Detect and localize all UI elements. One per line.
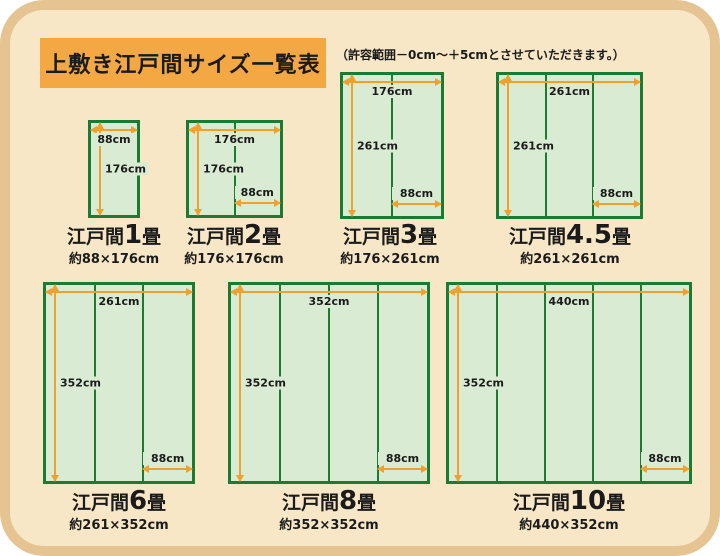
size-chart-stage: 上敷き江戸間サイズ一覧表 （許容範囲－0cm～＋5cmとさせていただきます。） … xyxy=(0,0,720,556)
diagram-title-suffix: 畳 xyxy=(357,492,376,514)
width-arrow xyxy=(189,129,280,131)
mat-width-label: 88cm xyxy=(392,187,441,200)
mat-width-arrow xyxy=(593,203,640,205)
diagram-title-prefix: 江戸間 xyxy=(282,492,339,514)
diagram-title-prefix: 江戸間 xyxy=(343,226,400,248)
height-arrow xyxy=(457,285,459,481)
width-arrow xyxy=(343,81,441,83)
height-arrow xyxy=(54,285,56,481)
height-arrow xyxy=(351,75,353,216)
diagram-edoma-6-rect: 261cm 352cm 88cm xyxy=(43,282,195,484)
height-arrow xyxy=(239,285,241,481)
height-dimension-label: 352cm xyxy=(58,377,103,390)
width-dimension-label: 440cm xyxy=(547,295,592,308)
diagram-title-number: 10 xyxy=(570,486,606,516)
diagram-edoma-3-title: 江戸間3畳 xyxy=(343,222,437,250)
diagram-title-number: 6 xyxy=(129,486,147,516)
diagram-title-prefix: 江戸間 xyxy=(509,226,566,248)
diagram-edoma-8-rect: 352cm 352cm 88cm xyxy=(228,282,430,484)
height-arrow xyxy=(507,75,509,216)
width-dimension-label: 352cm xyxy=(307,295,352,308)
mat-width-arrow xyxy=(641,468,689,470)
diagram-title-number: 4.5 xyxy=(566,220,612,250)
diagram-title-number: 2 xyxy=(244,220,262,250)
mat-width-arrow xyxy=(235,202,281,204)
height-dimension-label: 176cm xyxy=(201,163,246,176)
diagram-title-prefix: 江戸間 xyxy=(187,226,244,248)
height-dimension-label: 352cm xyxy=(243,377,288,390)
chart-title: 上敷き江戸間サイズ一覧表 xyxy=(40,38,326,88)
diagram-title-suffix: 畳 xyxy=(612,226,631,248)
diagram-edoma-1-title: 江戸間1畳 xyxy=(67,222,161,250)
diagram-edoma-10-size: 約440×352cm xyxy=(519,514,618,533)
diagram-edoma-2-rect: 176cm 176cm 88cm xyxy=(186,120,283,218)
mat-width-arrow xyxy=(378,468,427,470)
diagram-title-prefix: 江戸間 xyxy=(67,226,124,248)
diagram-edoma-8-title: 江戸間8畳 xyxy=(282,488,376,516)
width-arrow xyxy=(449,291,689,293)
diagram-title-suffix: 畳 xyxy=(606,492,625,514)
height-dimension-label: 261cm xyxy=(355,139,400,152)
tolerance-note: （許容範囲－0cm～＋5cmとさせていただきます。） xyxy=(336,46,625,63)
diagram-title-prefix: 江戸間 xyxy=(513,492,570,514)
diagram-title-number: 8 xyxy=(339,486,357,516)
mat-width-arrow xyxy=(143,468,192,470)
diagram-edoma-3-size: 約176×261cm xyxy=(340,248,439,267)
mat-division-line xyxy=(544,285,546,481)
width-dimension-label: 261cm xyxy=(547,85,592,98)
mat-width-label: 88cm xyxy=(378,452,427,465)
width-arrow xyxy=(499,81,640,83)
diagram-edoma-1-size: 約88×176cm xyxy=(69,248,159,267)
diagram-title-suffix: 畳 xyxy=(418,226,437,248)
diagram-edoma-10-rect: 440cm 352cm 88cm xyxy=(446,282,692,484)
diagram-edoma-10-title: 江戸間10畳 xyxy=(513,488,625,516)
diagram-edoma-2-size: 約176×176cm xyxy=(184,248,283,267)
mat-width-label: 88cm xyxy=(143,452,192,465)
diagram-title-suffix: 畳 xyxy=(147,492,166,514)
diagram-title-suffix: 畳 xyxy=(142,226,161,248)
width-arrow xyxy=(91,129,137,131)
diagram-title-number: 3 xyxy=(400,220,418,250)
height-dimension-label: 176cm xyxy=(103,163,148,176)
mat-width-label: 88cm xyxy=(593,187,640,200)
diagram-edoma-3-rect: 176cm 261cm 88cm xyxy=(340,72,444,219)
width-dimension-label: 176cm xyxy=(212,133,257,146)
height-arrow xyxy=(197,123,199,215)
mat-width-label: 88cm xyxy=(641,452,689,465)
diagram-title-suffix: 畳 xyxy=(262,226,281,248)
diagram-title-prefix: 江戸間 xyxy=(72,492,129,514)
diagram-edoma-4-5-title: 江戸間4.5畳 xyxy=(509,222,631,250)
diagram-edoma-8-size: 約352×352cm xyxy=(279,514,378,533)
diagram-edoma-6-size: 約261×352cm xyxy=(69,514,168,533)
height-dimension-label: 261cm xyxy=(511,139,556,152)
diagram-edoma-4-5-size: 約261×261cm xyxy=(520,248,619,267)
mat-division-line xyxy=(592,285,594,481)
width-dimension-label: 261cm xyxy=(97,295,142,308)
width-arrow xyxy=(231,291,427,293)
diagram-edoma-1-rect: 88cm 176cm xyxy=(88,120,140,218)
width-dimension-label: 88cm xyxy=(95,133,132,146)
diagram-edoma-4-5-rect: 261cm 261cm 88cm xyxy=(496,72,643,219)
diagram-edoma-6-title: 江戸間6畳 xyxy=(72,488,166,516)
width-arrow xyxy=(46,291,192,293)
mat-division-line xyxy=(328,285,330,481)
mat-width-arrow xyxy=(392,203,441,205)
mat-width-label: 88cm xyxy=(235,186,281,199)
height-dimension-label: 352cm xyxy=(461,377,506,390)
diagram-edoma-2-title: 江戸間2畳 xyxy=(187,222,281,250)
diagram-title-number: 1 xyxy=(124,220,142,250)
width-dimension-label: 176cm xyxy=(370,85,415,98)
